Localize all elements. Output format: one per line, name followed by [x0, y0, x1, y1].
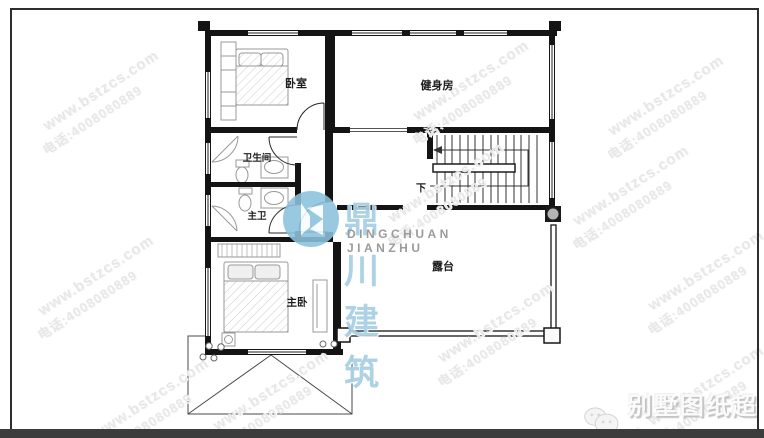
stair-down-label: 下 — [416, 180, 426, 195]
bottom-bar — [0, 429, 764, 438]
room-label-bathroom: 卫生间 — [243, 150, 272, 164]
floor-plan-page: 卧室 健身房 卫生间 主卫 主卧 露台 下 鼎川建筑 DINGCHUAN JIA… — [0, 0, 764, 438]
stair-handrail — [433, 164, 515, 172]
room-label-bedroom: 卧室 — [285, 75, 307, 91]
room-label-terrace: 露台 — [432, 258, 454, 274]
room-label-master-bedroom: 主卧 — [287, 295, 308, 310]
room-label-master-bathroom: 主卫 — [247, 208, 266, 222]
floor-plan-drawing — [0, 0, 764, 438]
room-label-gym: 健身房 — [421, 77, 454, 93]
